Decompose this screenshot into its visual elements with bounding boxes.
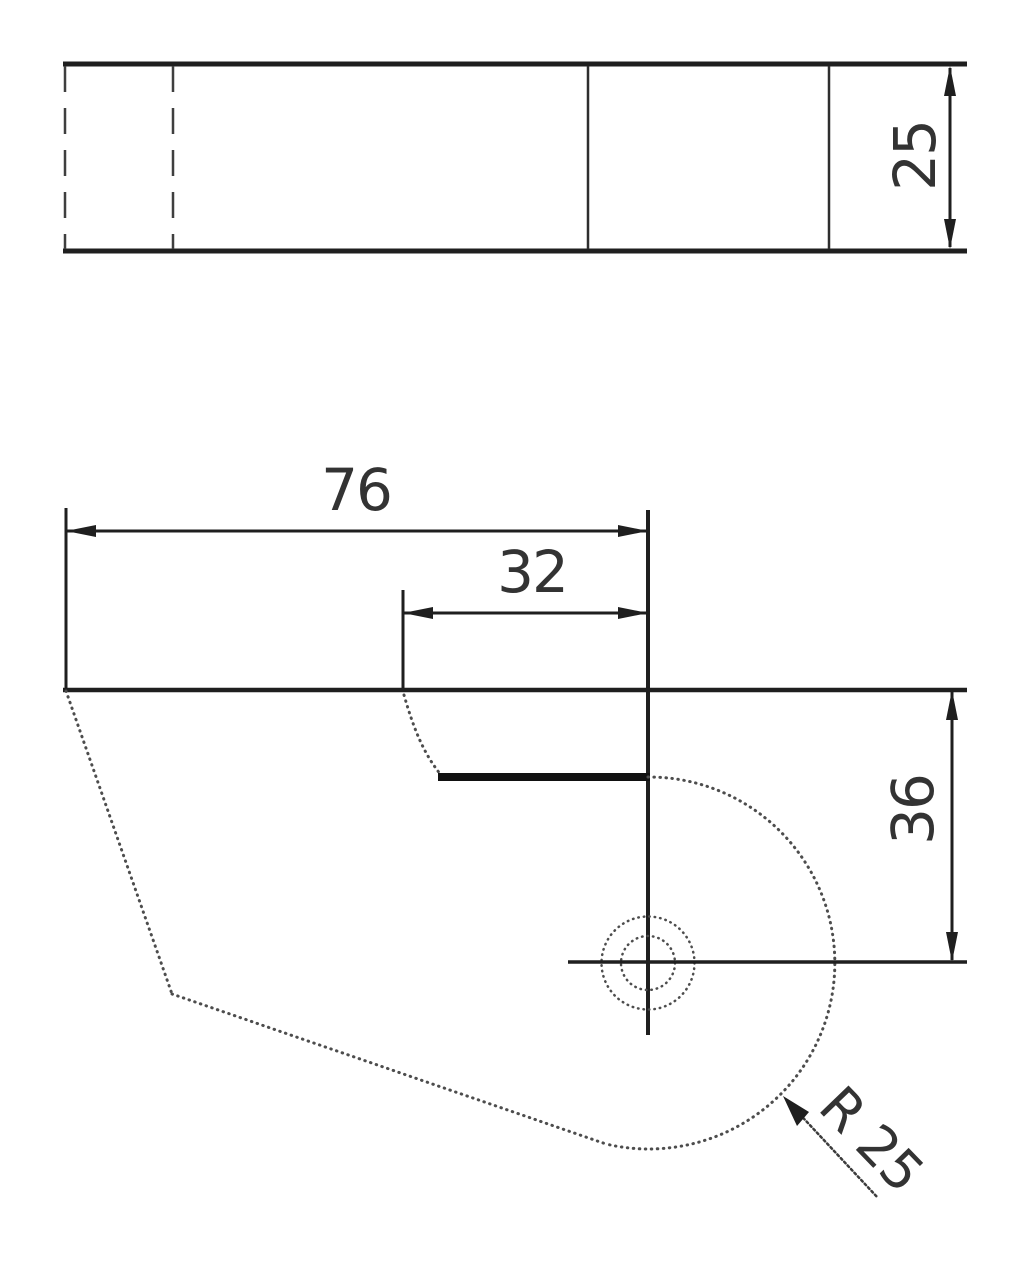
hole: [568, 917, 967, 1010]
top-view: 25: [63, 64, 967, 251]
dimension-32: 32: [403, 538, 648, 619]
arrowhead-right-icon: [618, 525, 648, 537]
arrowhead-down-icon: [946, 932, 958, 962]
front-view-step-curve: [404, 695, 441, 775]
front-view-left-slant-edge: [66, 691, 172, 994]
arrowhead-down-icon: [944, 219, 956, 249]
dimension-25-label: 25: [881, 121, 949, 191]
front-view: 76 32 36: [63, 456, 967, 1204]
arrowhead-up-icon: [946, 690, 958, 720]
dimension-36-label: 36: [879, 775, 947, 845]
radius-label: R 25: [807, 1074, 935, 1204]
dimension-32-label: 32: [497, 538, 567, 606]
dimension-25: 25: [881, 66, 956, 249]
arrowhead-up-icon: [944, 66, 956, 96]
arrowhead-upleft-icon: [783, 1096, 809, 1126]
radius-callout: R 25: [783, 1074, 935, 1204]
arrowhead-right-icon: [618, 607, 648, 619]
dimension-76-label: 76: [321, 456, 391, 524]
arrowhead-left-icon: [403, 607, 433, 619]
dimension-36: 36: [879, 690, 958, 962]
arrowhead-left-icon: [66, 525, 96, 537]
front-view-bottom-tangent-edge: [172, 994, 606, 1144]
dimension-76: 76: [66, 456, 648, 537]
engineering-drawing: 25 76 32: [0, 0, 1024, 1263]
